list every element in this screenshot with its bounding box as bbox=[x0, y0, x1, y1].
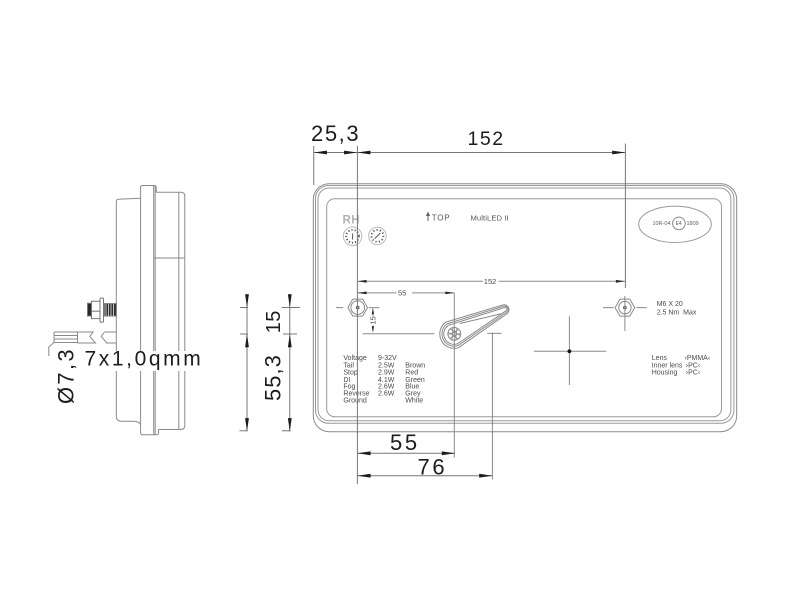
svg-text:E4: E4 bbox=[676, 221, 682, 227]
svg-text:Voltage: Voltage bbox=[343, 355, 366, 362]
svg-text:55: 55 bbox=[398, 289, 406, 298]
svg-text:Ground: Ground bbox=[343, 398, 366, 405]
svg-text:MultiLED II: MultiLED II bbox=[471, 214, 509, 223]
svg-text:White: White bbox=[405, 398, 423, 405]
svg-text:Stop: Stop bbox=[343, 370, 358, 377]
svg-text:152: 152 bbox=[484, 277, 497, 286]
svg-text:7x1,0qmm: 7x1,0qmm bbox=[85, 348, 204, 371]
svg-text:1809: 1809 bbox=[687, 221, 699, 227]
svg-text:2.6W: 2.6W bbox=[378, 383, 395, 390]
svg-text:55,3: 55,3 bbox=[261, 354, 286, 401]
svg-text:M6 X 20: M6 X 20 bbox=[657, 301, 683, 308]
svg-text:152: 152 bbox=[468, 128, 505, 150]
svg-text:Housing: Housing bbox=[652, 370, 678, 377]
svg-text:Red: Red bbox=[405, 370, 418, 377]
svg-text:TOP: TOP bbox=[432, 214, 451, 223]
svg-text:25,3: 25,3 bbox=[311, 121, 360, 146]
svg-text:10R-04: 10R-04 bbox=[653, 221, 671, 227]
svg-text:Lens: Lens bbox=[652, 355, 668, 362]
svg-text:Brown: Brown bbox=[405, 362, 425, 369]
svg-text:15: 15 bbox=[369, 316, 378, 324]
svg-text:›PMMA‹: ›PMMA‹ bbox=[685, 355, 711, 362]
svg-text:2.6W: 2.6W bbox=[378, 391, 395, 398]
svg-text:15: 15 bbox=[263, 310, 285, 333]
svg-text:›PC‹: ›PC‹ bbox=[686, 370, 701, 377]
svg-text:76: 76 bbox=[418, 455, 448, 480]
svg-text:Inner lens: Inner lens bbox=[652, 362, 683, 369]
svg-text:2.5W: 2.5W bbox=[378, 362, 395, 369]
svg-text:2.5 Nm Max: 2.5 Nm Max bbox=[657, 310, 697, 317]
svg-text:55: 55 bbox=[390, 430, 420, 455]
svg-text:Blue: Blue bbox=[405, 383, 419, 390]
svg-text:Tail: Tail bbox=[343, 362, 354, 369]
svg-text:Fog: Fog bbox=[343, 383, 355, 390]
svg-text:Ø7,3: Ø7,3 bbox=[54, 347, 79, 404]
svg-text:9-32V: 9-32V bbox=[378, 355, 397, 362]
svg-text:2.9W: 2.9W bbox=[378, 370, 395, 377]
svg-text:›PC‹: ›PC‹ bbox=[686, 362, 701, 369]
